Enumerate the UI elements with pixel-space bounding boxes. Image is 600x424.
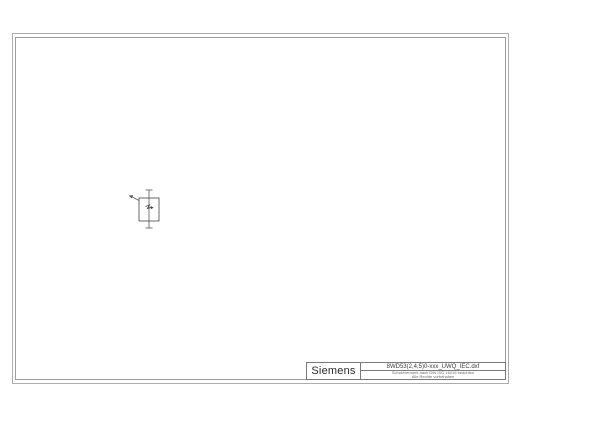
- brand-logo-text: Siemens: [311, 365, 355, 377]
- cad-sheet: Siemens 8WD53(2,4,5)0-xxx_UWQ_IEC.dxf Sc…: [0, 0, 600, 424]
- drawing-filename: 8WD53(2,4,5)0-xxx_UWQ_IEC.dxf: [387, 364, 480, 370]
- title-block: Siemens 8WD53(2,4,5)0-xxx_UWQ_IEC.dxf Sc…: [306, 362, 506, 380]
- schematic-symbol: [124, 183, 170, 237]
- note-line-2: Alle Rechte vorbehalten: [412, 375, 454, 379]
- title-block-right: 8WD53(2,4,5)0-xxx_UWQ_IEC.dxf Schutzverm…: [361, 363, 505, 379]
- actuation-arrow-icon: [129, 195, 139, 200]
- flash-icon: [146, 205, 154, 209]
- notes-row: Schutzvermerk nach DIN ISO 16016 beachte…: [361, 371, 505, 379]
- brand-cell: Siemens: [307, 363, 361, 379]
- sheet-inner-border: [15, 37, 506, 380]
